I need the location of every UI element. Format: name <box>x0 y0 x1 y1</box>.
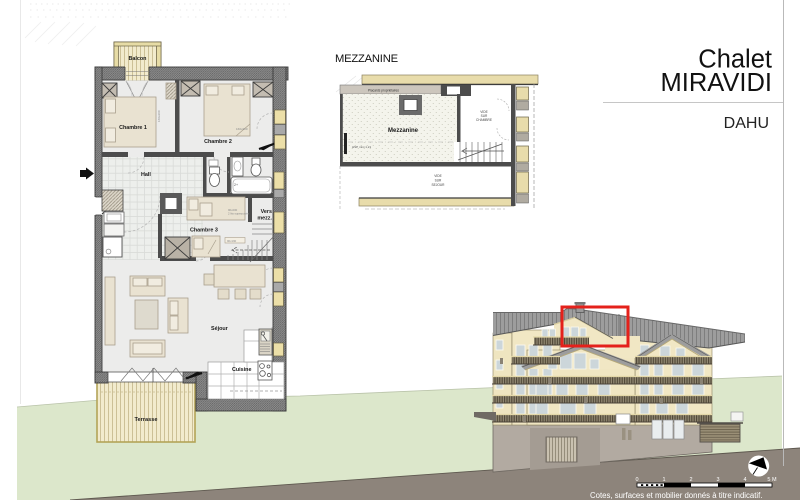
svg-text:HSP mini 1,21: HSP mini 1,21 <box>352 145 371 149</box>
svg-text:SEJOUR: SEJOUR <box>432 183 446 187</box>
svg-text:2+: 2+ <box>234 183 238 187</box>
svg-text:SUR: SUR <box>435 179 442 183</box>
svg-text:VIDE: VIDE <box>434 174 441 178</box>
svg-text:Chambre 3: Chambre 3 <box>190 228 218 234</box>
svg-text:CHAMBRE: CHAMBRE <box>476 118 492 122</box>
svg-text:Séjour: Séjour <box>211 326 229 332</box>
svg-text:160x200: 160x200 <box>236 127 248 131</box>
svg-text:1: 1 <box>662 477 665 483</box>
svg-text:DAHU: DAHU <box>724 115 769 132</box>
svg-text:Placards propriétaires: Placards propriétaires <box>368 89 399 93</box>
svg-text:2: 2 <box>689 477 692 483</box>
svg-text:Chambre 2: Chambre 2 <box>204 139 232 145</box>
svg-text:Vers: Vers <box>261 209 272 215</box>
svg-text:Cotes, surfaces et mobilier do: Cotes, surfaces et mobilier donnés à tit… <box>590 491 762 500</box>
svg-text:Hall: Hall <box>141 172 151 178</box>
svg-text:MIRAVIDI: MIRAVIDI <box>661 69 772 97</box>
svg-text:2 lits superposés: 2 lits superposés <box>228 212 250 216</box>
svg-text:Terrasse: Terrasse <box>135 417 158 423</box>
svg-text:Mezzanine: Mezzanine <box>388 128 419 134</box>
svg-text:Cuisine: Cuisine <box>232 367 251 373</box>
svg-text:4: 4 <box>743 477 746 483</box>
svg-text:mezz.: mezz. <box>257 216 272 222</box>
svg-text:Chambre 1: Chambre 1 <box>119 125 147 131</box>
svg-text:Balcon: Balcon <box>129 56 147 62</box>
svg-text:5 M: 5 M <box>767 477 777 483</box>
svg-text:MEZZANINE: MEZZANINE <box>335 53 398 65</box>
svg-text:90x190: 90x190 <box>227 239 237 243</box>
svg-text:160x200: 160x200 <box>157 110 161 122</box>
svg-text:0: 0 <box>635 477 638 483</box>
svg-text:3: 3 <box>716 477 719 483</box>
